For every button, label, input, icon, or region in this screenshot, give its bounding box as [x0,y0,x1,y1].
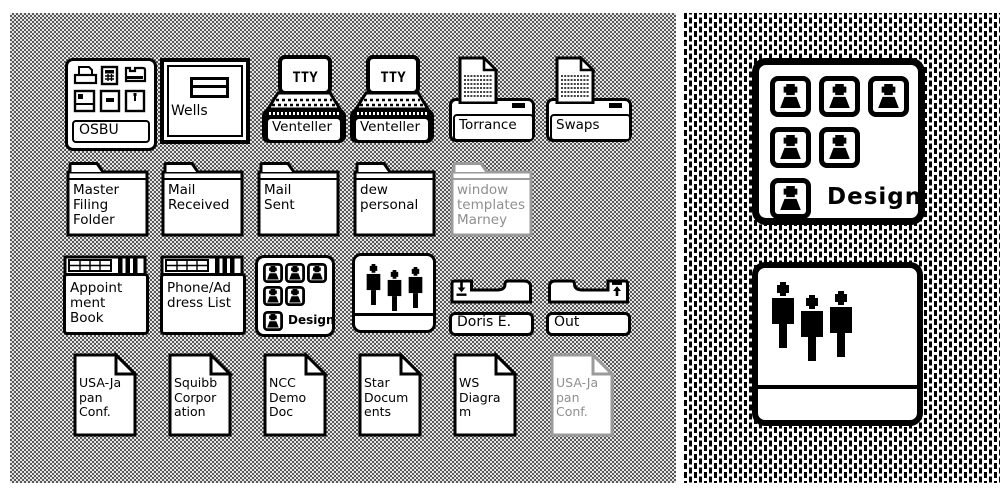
person-icon [829,291,853,357]
icon-document-ws-diagram[interactable]: WS Diagra m [452,352,518,438]
printer-slot-icon [512,103,525,108]
icon-document-usa-japan-conf[interactable]: USA-Ja pan Conf. [72,352,138,438]
venteller-2-label: Venteller [360,120,420,135]
star-documents-label: Star Docum ents [364,376,418,420]
doris-e-label: Doris E. [457,315,511,331]
printer-name-plate: Torrance [453,114,534,141]
usa-japan-conf-ghost-label: USA-Ja pan Conf. [556,376,610,420]
drawer-front-icon [190,77,229,98]
icon-printer-swaps[interactable]: Swaps [545,56,633,144]
portrait-icon [868,76,909,117]
file-drawer-contents-icon [72,65,148,117]
out-basket-name-plate: Out [546,312,631,336]
icon-terminal-venteller-2[interactable]: TTY Venteller [348,55,436,144]
portrait-icon [770,76,811,117]
person-icon [366,264,381,305]
label-strip-divider [355,313,433,316]
wells-label: Wells [171,104,208,120]
tty-terminal-icon: TTY [348,55,436,111]
icon-document-squibb-corporation[interactable]: Squibb Corpor ation [167,352,233,438]
icon-printer-torrance[interactable]: Torrance [448,56,536,144]
in-basket-icon [449,278,534,304]
terminal-base: Venteller [262,109,346,143]
osbu-name-plate: OSBU [72,120,150,143]
appointment-book-label: Appoint ment Book [70,281,122,326]
icon-folder-mail-received[interactable]: Mail Received [160,160,245,238]
icon-folder-mail-sent[interactable]: Mail Sent [256,160,341,238]
icon-folder-window-templates-marney-ghost[interactable]: window templates Marney [449,160,534,238]
icon-drawer-wells[interactable]: Wells [160,58,250,144]
icon-group-design-small[interactable]: Design [255,255,335,337]
printout-paper-icon [555,56,595,104]
icon-document-ncc-demo-doc[interactable]: NCC Demo Doc [262,352,328,438]
icon-out-basket[interactable]: Out [546,278,631,336]
out-basket-icon [546,278,631,304]
icon-ledger-appointment-book[interactable]: Appoint ment Book [63,255,149,335]
printer-slot-icon [609,103,622,108]
venteller-1-label: Venteller [272,120,332,135]
master-filing-label: Master Filing Folder [73,183,119,228]
tty-screen-text: TTY [292,70,318,86]
terminal-name-plate: Venteller [266,117,342,142]
portrait-icon [285,286,305,306]
wells-inner-border [167,65,243,137]
icon-document-star-documents[interactable]: Star Docum ents [357,352,423,438]
printout-paper-icon [458,56,498,104]
mail-received-label: Mail Received [168,183,229,213]
person-icon [800,295,824,361]
design-large-label: Design [827,185,922,211]
swaps-label: Swaps [556,118,600,133]
icon-in-basket-doris-e[interactable]: Doris E. [449,278,534,336]
icon-document-usa-japan-conf-ghost[interactable]: USA-Ja pan Conf. [549,352,615,438]
person-icon [408,267,423,308]
portrait-icon [819,76,860,117]
design-small-label: Design [288,314,335,327]
tty-screen-text: TTY [380,70,406,86]
portrait-icon [263,263,283,283]
in-basket-name-plate: Doris E. [449,312,534,336]
portrait-icon [770,127,811,168]
screenshot-root: OSBU Wells TTY Venteller TTY [0,0,1000,495]
portrait-icon [819,127,860,168]
phone-address-list-label: Phone/Ad dress List [167,281,231,311]
icon-terminal-venteller-1[interactable]: TTY Venteller [260,55,348,144]
icon-people-small[interactable] [352,253,436,333]
out-label: Out [554,315,579,331]
terminal-name-plate: Venteller [354,117,430,142]
icon-file-drawer-osbu[interactable]: OSBU [65,58,157,151]
portrait-icon [263,286,283,306]
portrait-icon [770,178,811,219]
ncc-demo-doc-label: NCC Demo Doc [269,376,323,420]
tty-terminal-icon: TTY [260,55,348,111]
label-strip-divider [758,385,917,389]
squibb-corporation-label: Squibb Corpor ation [174,376,228,420]
dew-personal-label: dew personal [360,183,418,213]
icon-folder-master-filing[interactable]: Master Filing Folder [65,160,150,238]
terminal-base: Venteller [350,109,434,143]
portrait-icon [285,263,305,283]
osbu-label: OSBU [79,123,119,139]
magnified-icon-group-design[interactable]: Design [752,58,925,225]
usa-japan-conf-label: USA-Ja pan Conf. [79,376,133,420]
icon-folder-dew-personal[interactable]: dew personal [352,160,437,238]
magnified-icon-people[interactable] [752,262,923,426]
portrait-icon [307,263,327,283]
mail-sent-label: Mail Sent [264,183,295,213]
person-icon [771,282,795,348]
icon-ledger-phone-address-list[interactable]: Phone/Ad dress List [160,255,246,335]
window-templates-marney-label: window templates Marney [457,183,525,228]
torrance-label: Torrance [459,118,517,133]
ws-diagram-label: WS Diagra m [459,376,513,420]
portrait-icon [263,311,283,331]
printer-name-plate: Swaps [550,114,631,141]
person-icon [387,270,402,311]
